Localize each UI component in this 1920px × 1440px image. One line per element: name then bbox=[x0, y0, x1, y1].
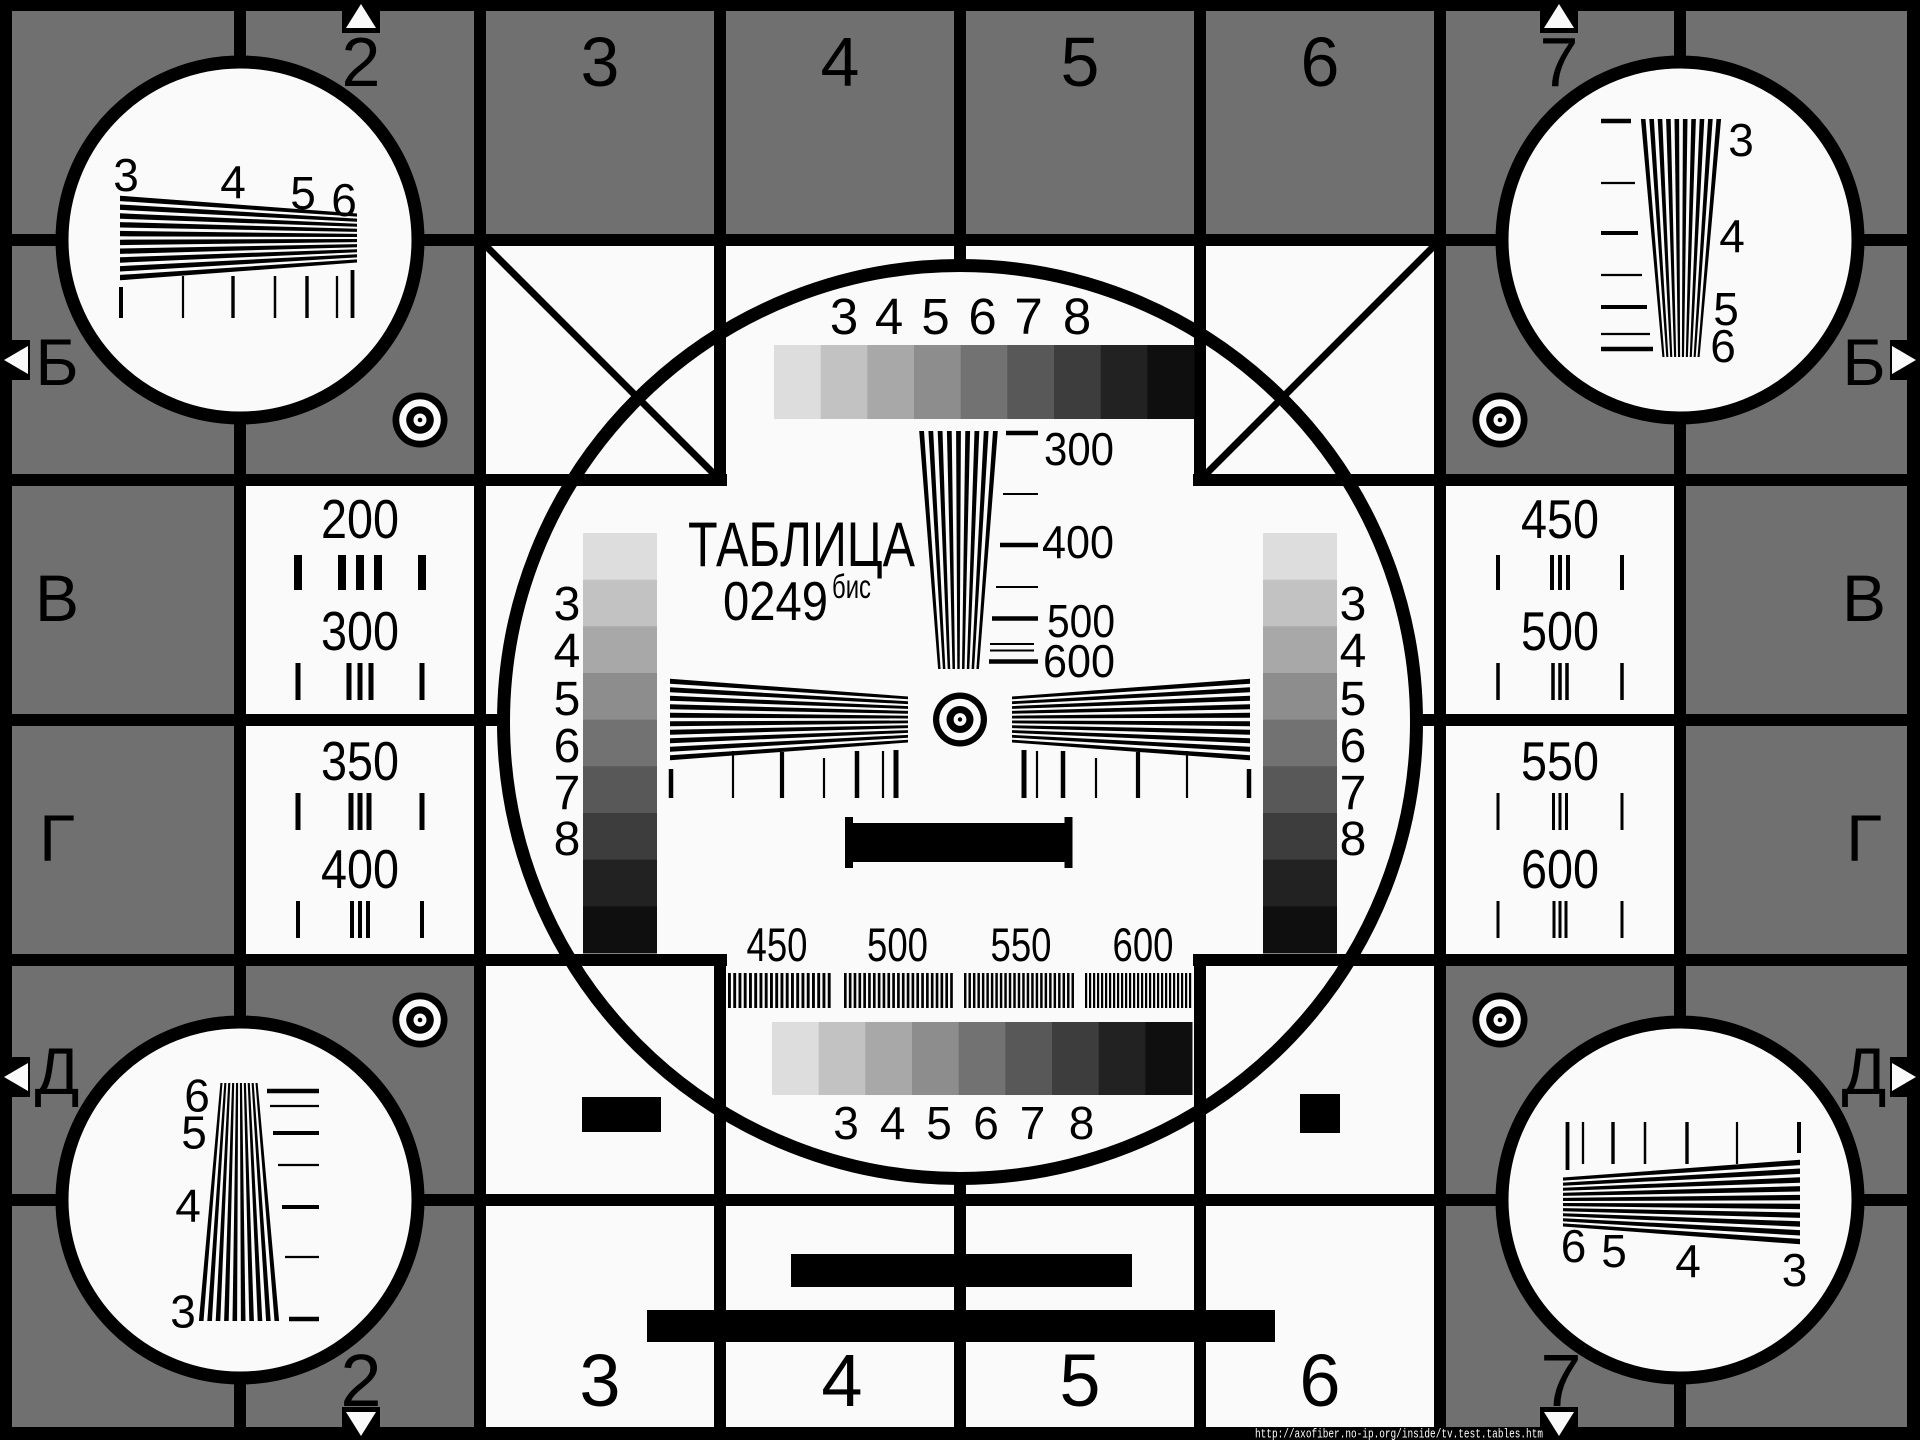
svg-text:6: 6 bbox=[1710, 320, 1736, 372]
svg-text:6: 6 bbox=[1301, 23, 1340, 101]
svg-text:7: 7 bbox=[1020, 1097, 1046, 1149]
svg-text:В: В bbox=[35, 561, 79, 635]
svg-text:Д: Д bbox=[35, 1034, 80, 1108]
svg-text:6: 6 bbox=[1299, 1339, 1340, 1422]
svg-text:6: 6 bbox=[184, 1070, 210, 1122]
svg-text:6: 6 bbox=[554, 720, 581, 773]
svg-text:7: 7 bbox=[1540, 23, 1579, 101]
svg-text:4: 4 bbox=[554, 625, 581, 678]
svg-text:Г: Г bbox=[1846, 801, 1882, 875]
svg-text:400: 400 bbox=[1042, 516, 1114, 568]
svg-text:300: 300 bbox=[1044, 423, 1114, 475]
svg-text:бис: бис bbox=[832, 568, 871, 605]
svg-text:300: 300 bbox=[321, 600, 399, 662]
svg-text:550: 550 bbox=[991, 918, 1052, 971]
svg-text:4: 4 bbox=[220, 156, 246, 208]
svg-text:6: 6 bbox=[1561, 1220, 1587, 1272]
svg-text:550: 550 bbox=[1521, 730, 1599, 792]
svg-text:8: 8 bbox=[1340, 813, 1367, 866]
svg-text:3: 3 bbox=[170, 1286, 196, 1338]
svg-text:8: 8 bbox=[554, 813, 581, 866]
svg-text:4: 4 bbox=[821, 1339, 862, 1422]
svg-text:0249: 0249 bbox=[723, 570, 828, 632]
svg-text:3: 3 bbox=[833, 1097, 859, 1149]
svg-text:3: 3 bbox=[1728, 114, 1754, 166]
svg-text:3: 3 bbox=[830, 288, 858, 345]
svg-text:500: 500 bbox=[867, 918, 928, 971]
svg-text:В: В bbox=[1842, 561, 1886, 635]
svg-text:6: 6 bbox=[968, 288, 996, 345]
svg-text:4: 4 bbox=[1719, 210, 1745, 262]
svg-text:4: 4 bbox=[1675, 1235, 1701, 1287]
svg-text:600: 600 bbox=[1043, 635, 1115, 687]
svg-text:Г: Г bbox=[39, 801, 75, 875]
svg-text:5: 5 bbox=[1059, 1339, 1100, 1422]
svg-text:Б: Б bbox=[35, 325, 78, 399]
svg-text:3: 3 bbox=[1340, 578, 1367, 631]
svg-text:450: 450 bbox=[747, 918, 808, 971]
svg-text:4: 4 bbox=[1340, 625, 1367, 678]
svg-text:5: 5 bbox=[1601, 1225, 1627, 1277]
svg-text:200: 200 bbox=[321, 488, 399, 550]
svg-text:6: 6 bbox=[973, 1097, 999, 1149]
svg-text:4: 4 bbox=[821, 23, 860, 101]
svg-text:600: 600 bbox=[1521, 838, 1599, 900]
svg-text:Д: Д bbox=[1842, 1034, 1887, 1108]
svg-text:5: 5 bbox=[926, 1097, 952, 1149]
svg-text:3: 3 bbox=[581, 23, 620, 101]
svg-text:Б: Б bbox=[1842, 325, 1885, 399]
svg-text:3: 3 bbox=[1782, 1244, 1808, 1296]
svg-text:450: 450 bbox=[1521, 488, 1599, 550]
svg-text:3: 3 bbox=[113, 149, 139, 201]
svg-text:5: 5 bbox=[554, 673, 581, 726]
svg-text:5: 5 bbox=[1061, 23, 1100, 101]
svg-text:600: 600 bbox=[1113, 918, 1174, 971]
svg-text:8: 8 bbox=[1063, 288, 1091, 345]
svg-text:4: 4 bbox=[875, 288, 903, 345]
svg-text:3: 3 bbox=[554, 578, 581, 631]
svg-text:500: 500 bbox=[1521, 600, 1599, 662]
svg-text:5: 5 bbox=[1340, 673, 1367, 726]
svg-text:2: 2 bbox=[342, 23, 381, 101]
svg-text:400: 400 bbox=[321, 838, 399, 900]
svg-text:6: 6 bbox=[331, 174, 357, 226]
svg-text:350: 350 bbox=[321, 730, 399, 792]
svg-text:4: 4 bbox=[175, 1180, 201, 1232]
svg-text:8: 8 bbox=[1069, 1097, 1095, 1149]
svg-text:7: 7 bbox=[1014, 288, 1042, 345]
svg-text:4: 4 bbox=[880, 1097, 906, 1149]
svg-text:3: 3 bbox=[579, 1339, 620, 1422]
svg-text:5: 5 bbox=[921, 288, 949, 345]
svg-text:6: 6 bbox=[1340, 720, 1367, 773]
svg-text:http://axofiber.no-ip.org/insi: http://axofiber.no-ip.org/inside/tv.test… bbox=[1255, 1427, 1543, 1440]
svg-text:5: 5 bbox=[290, 167, 316, 219]
